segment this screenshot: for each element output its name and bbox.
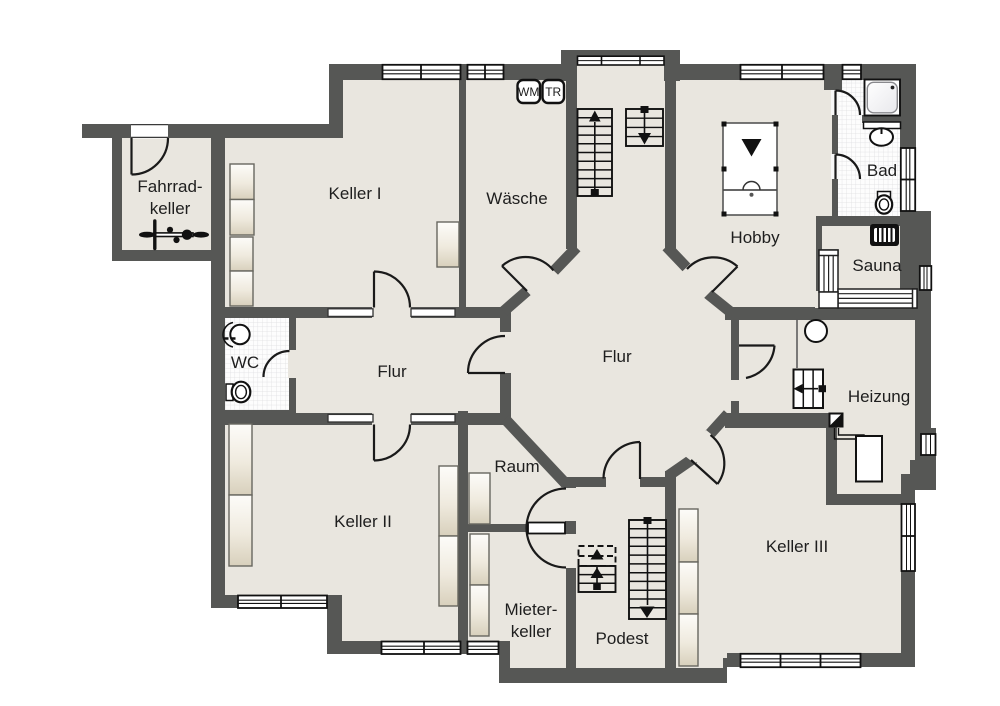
svg-text:Keller III: Keller III [766,537,828,556]
svg-text:Flur: Flur [602,347,632,366]
svg-text:Wäsche: Wäsche [486,189,547,208]
svg-text:Keller II: Keller II [334,512,392,531]
svg-text:Flur: Flur [377,362,407,381]
svg-text:Bad: Bad [867,161,897,180]
svg-text:Podest: Podest [596,629,649,648]
svg-text:Mieter-: Mieter- [505,600,558,619]
svg-text:TR: TR [545,85,561,99]
svg-text:keller: keller [511,622,552,641]
svg-text:Raum: Raum [494,457,539,476]
svg-text:Hobby: Hobby [730,228,780,247]
svg-text:WC: WC [231,353,259,372]
svg-text:Sauna: Sauna [852,256,902,275]
svg-text:Fahrrad-: Fahrrad- [137,177,202,196]
svg-text:keller: keller [150,199,191,218]
svg-text:Keller I: Keller I [329,184,382,203]
svg-text:WM: WM [518,85,539,99]
svg-text:Heizung: Heizung [848,387,910,406]
